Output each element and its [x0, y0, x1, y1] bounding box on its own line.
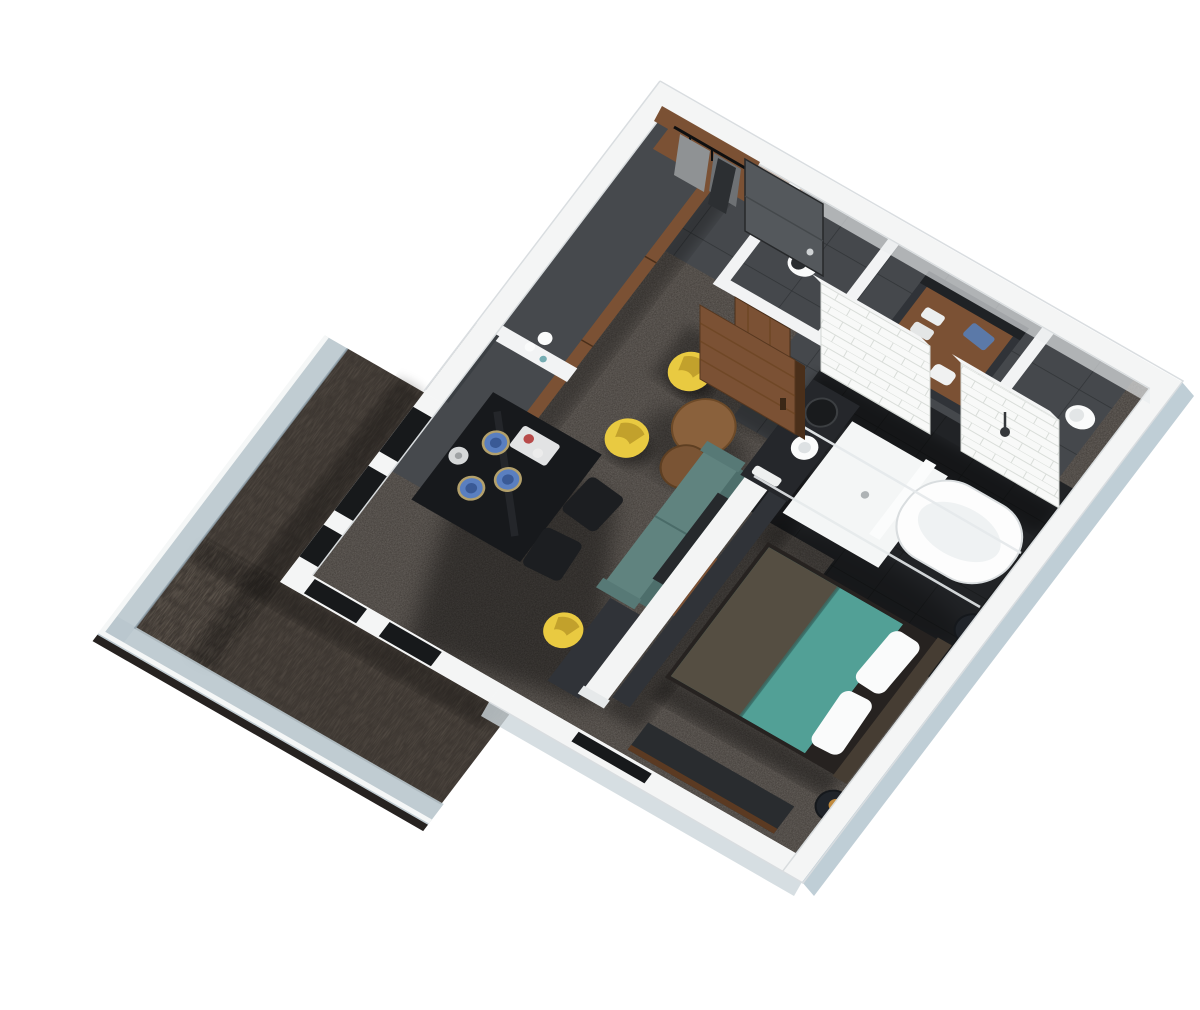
entry-door-handle: [807, 249, 814, 256]
pivot-door-handle: [780, 398, 786, 410]
shower-head: [1000, 427, 1010, 437]
pivot-door-edge: [795, 360, 805, 440]
suite-3d-floorplan: [0, 0, 1200, 1010]
floorplan-svg: [0, 0, 1200, 1010]
